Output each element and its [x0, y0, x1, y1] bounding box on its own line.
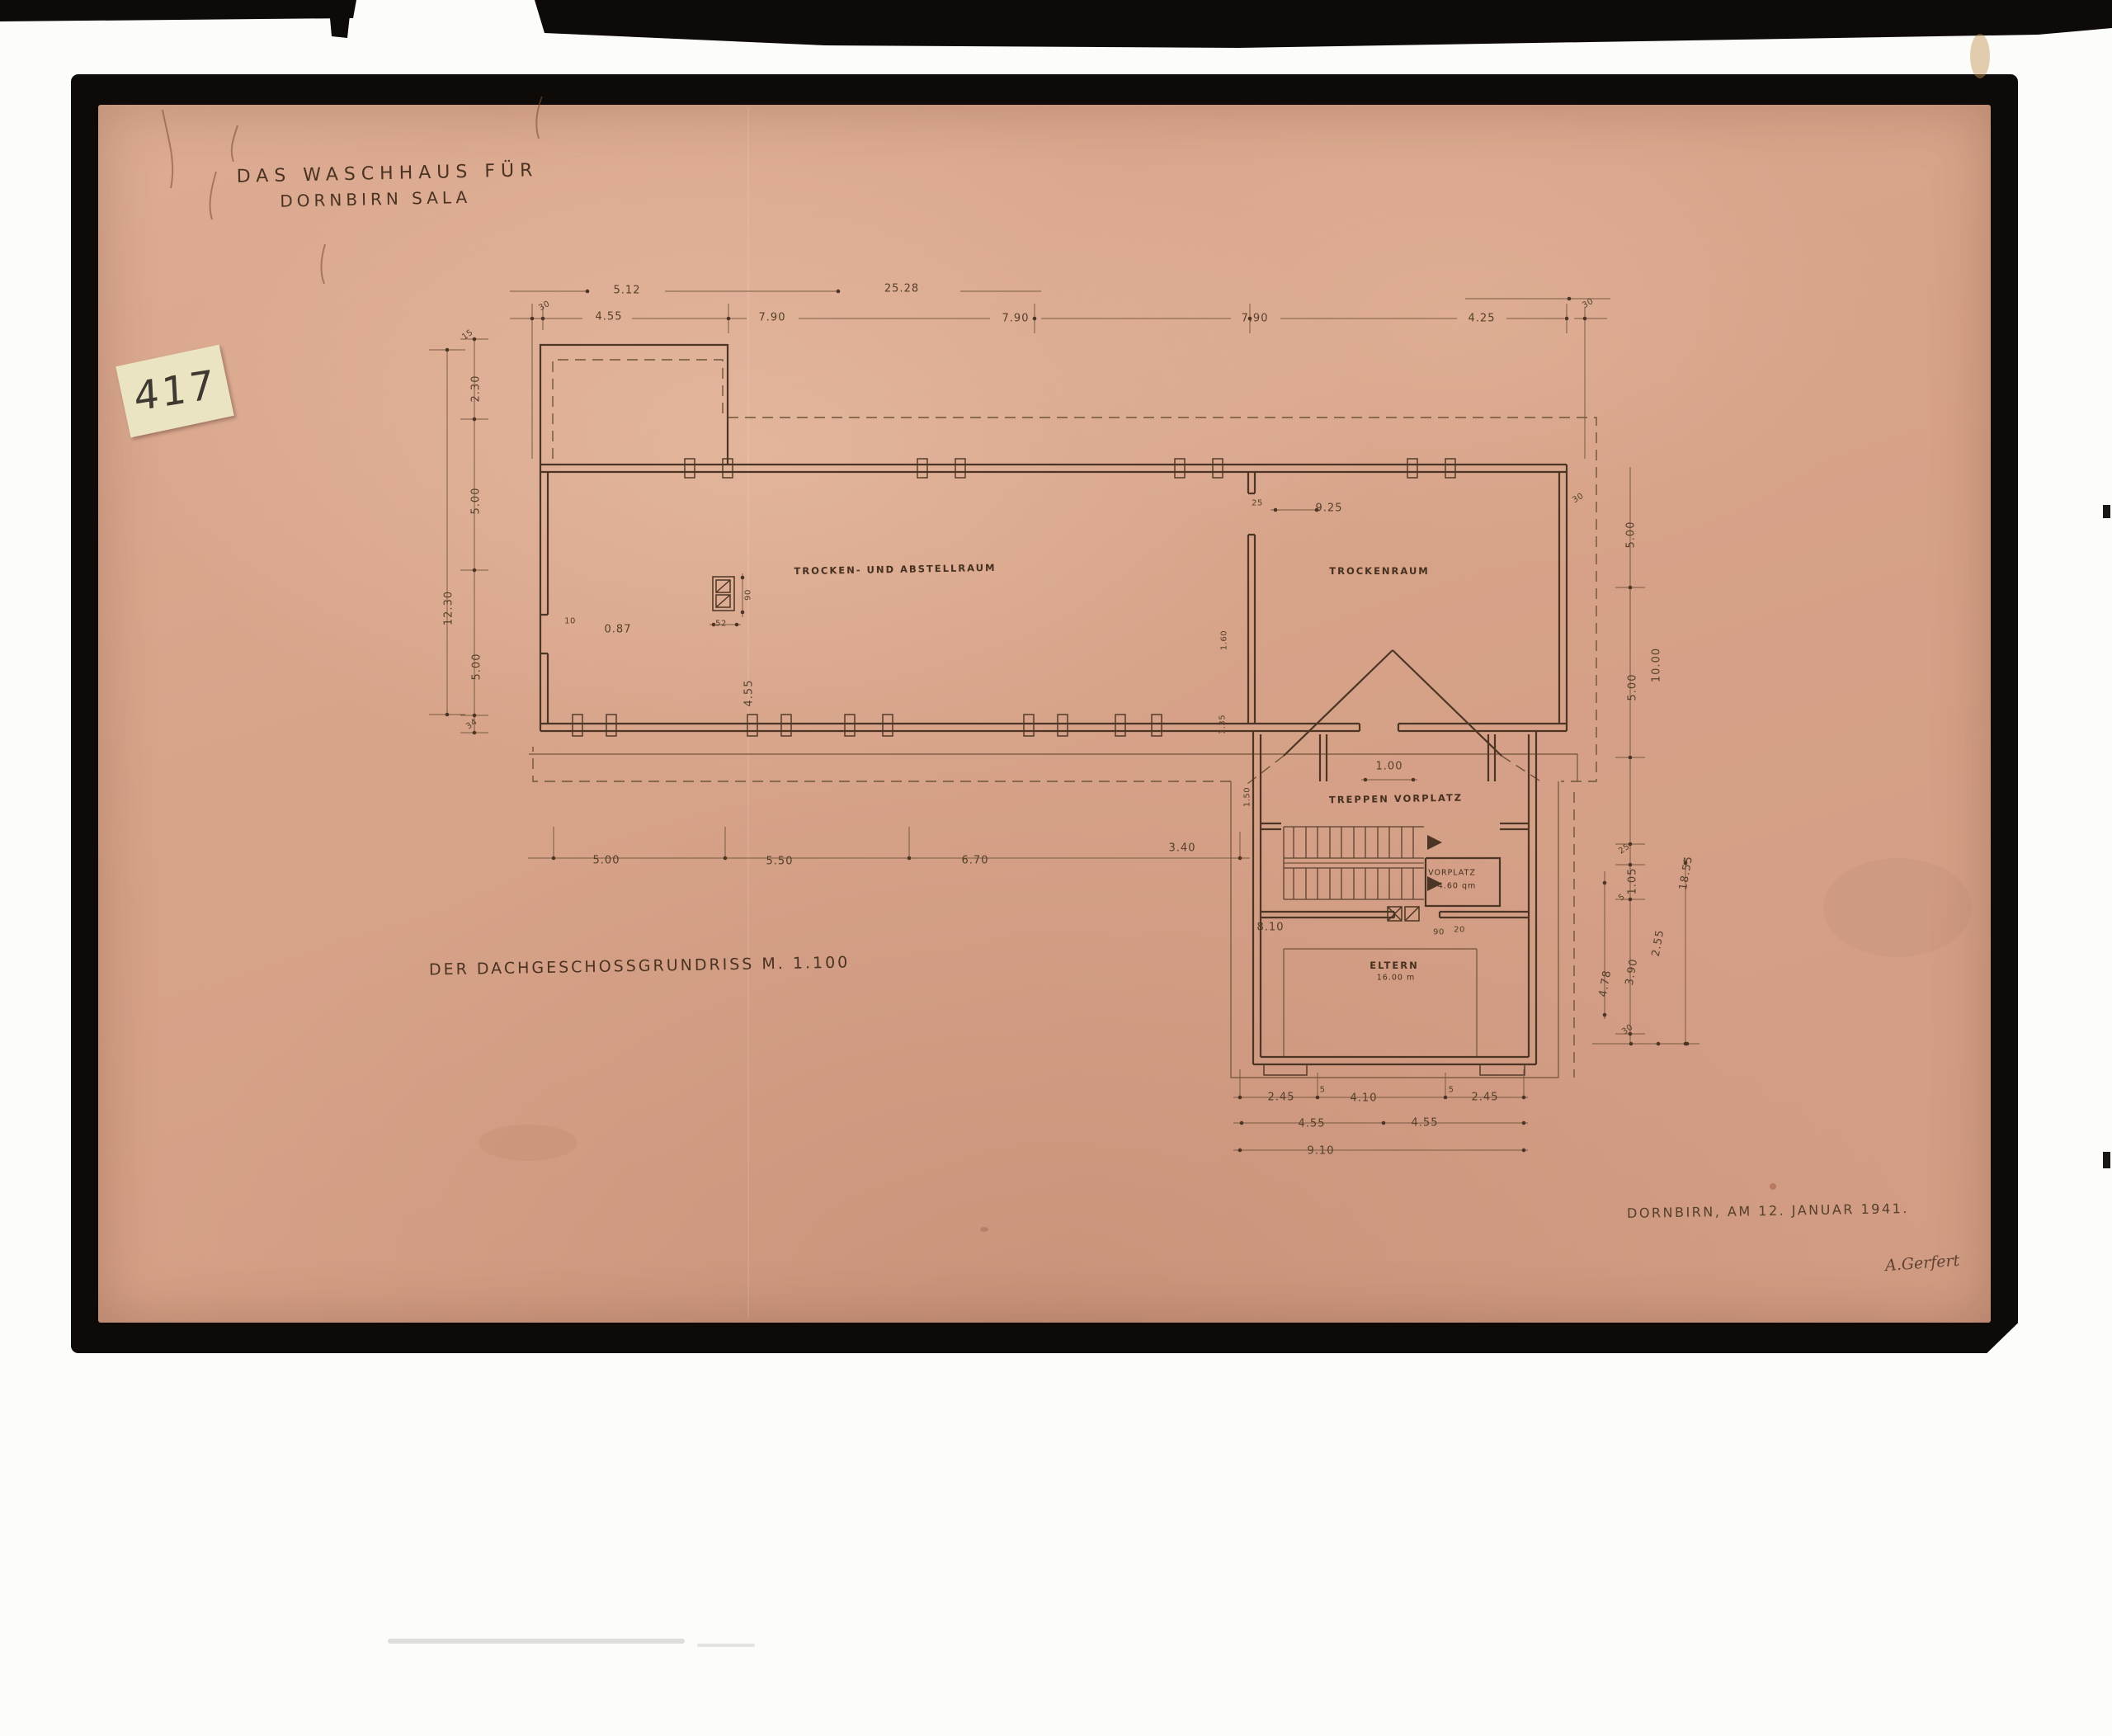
dimension-label: 5.00 [1625, 521, 1638, 549]
dimension-label: 6.70 [962, 855, 989, 867]
dimension-label: 5.50 [766, 856, 794, 868]
stain-artifacts [478, 34, 1990, 1232]
dimension-label: 5.00 [593, 855, 620, 867]
room-label: VORPLATZ [1428, 869, 1476, 878]
dimension-label: 52 [715, 620, 727, 629]
dimension-label: 5.00 [470, 488, 483, 515]
dimension-label: 4.25 [1468, 313, 1496, 325]
dimension-label: 10 [564, 617, 576, 626]
dimension-label: 7.90 [759, 312, 786, 324]
dimension-label: 5.00 [471, 653, 483, 681]
dimension-label: 9.10 [1308, 1145, 1335, 1158]
dimension-label: 4.55 [1299, 1118, 1326, 1130]
dimension-label: 1.05 [1627, 868, 1639, 895]
dimension-label: 1.50 [1243, 787, 1252, 807]
dimension-label: 4.55 [743, 680, 756, 707]
dimension-label: 1.00 [1376, 761, 1403, 773]
room-label: TREPPEN VORPLATZ [1329, 792, 1463, 806]
dimension-label: 20 [1454, 926, 1465, 935]
dimension-label: 2.30 [470, 375, 483, 403]
room-label: TROCKENRAUM [1329, 565, 1430, 577]
dimension-label: 1.60 [1220, 630, 1229, 650]
dimension-label: 25 [1252, 499, 1263, 508]
dimension-label: 90 [1433, 928, 1445, 937]
dimension-label: 7.90 [1242, 313, 1269, 325]
dimension-label: 10.00 [1651, 648, 1663, 682]
scan-edge-bands [0, 0, 2112, 48]
dimension-label: 4.10 [1351, 1092, 1378, 1105]
dimension-label: 2.45 [1472, 1092, 1499, 1104]
floor-plan-drawing [0, 0, 2112, 1736]
dimension-label: 7.90 [1002, 313, 1030, 325]
dimension-label: 0.87 [605, 624, 632, 636]
room-label: 4.60 qm [1438, 882, 1476, 891]
chimney-flue-symbols [713, 577, 1419, 921]
dimension-label: 5.12 [614, 285, 641, 297]
room-label: 16.00 m [1377, 974, 1415, 983]
dimension-label: 1.35 [1219, 715, 1228, 734]
dimension-label: 5.00 [1627, 674, 1639, 701]
dimension-label: 2.45 [1268, 1092, 1295, 1104]
dimension-label: 5 [1320, 1086, 1326, 1095]
archive-number: 417 [133, 361, 217, 421]
room-label: ELTERN [1369, 960, 1418, 971]
dimension-lines [429, 291, 1699, 1150]
dimension-label: 9.25 [1316, 502, 1343, 515]
drawing-title: DAS WASCHHAUS FÜR DORNBIRN SALA [236, 160, 539, 212]
dimension-label: 5 [1449, 1086, 1454, 1095]
dimension-label: 3.40 [1169, 842, 1196, 855]
scan-page: 417 DAS WASCHHAUS FÜR DORNBIRN SALA DER … [0, 0, 2112, 1736]
dimension-label: 8.10 [1257, 922, 1285, 934]
dimension-label: 4.55 [596, 311, 623, 323]
dimension-label: 12.30 [443, 591, 455, 625]
dimension-label: 90 [744, 589, 753, 601]
dimension-label: 25.28 [884, 283, 919, 295]
dimension-label: 4.55 [1412, 1117, 1439, 1130]
